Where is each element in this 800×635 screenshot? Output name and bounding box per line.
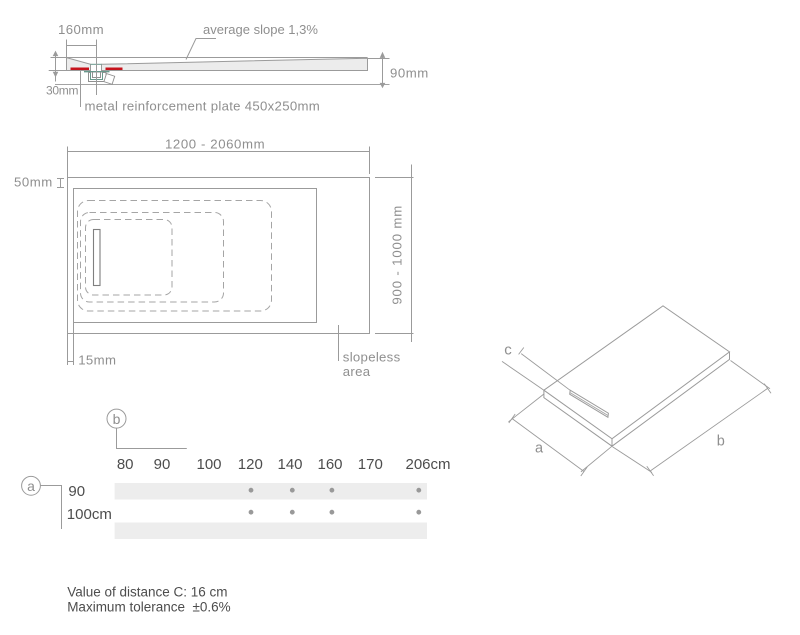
svg-text:area: area <box>343 364 371 379</box>
svg-text:160mm: 160mm <box>58 22 104 37</box>
svg-text:b: b <box>113 411 121 427</box>
svg-text:50mm: 50mm <box>14 175 53 190</box>
svg-text:160: 160 <box>317 456 342 473</box>
svg-text:slopeless: slopeless <box>343 350 401 365</box>
svg-text:90: 90 <box>154 456 171 473</box>
svg-text:c: c <box>504 342 512 359</box>
svg-text:Maximum tolerance ±0.6%: Maximum tolerance ±0.6% <box>67 600 230 615</box>
svg-text:170: 170 <box>358 456 383 473</box>
svg-text:a: a <box>535 440 544 456</box>
svg-text:15mm: 15mm <box>78 353 116 368</box>
svg-text:30mm: 30mm <box>46 84 78 98</box>
svg-text:100: 100 <box>196 456 221 473</box>
svg-text:a: a <box>27 478 35 494</box>
svg-text:metal reinforcement plate 450x: metal reinforcement plate 450x250mm <box>85 99 321 114</box>
svg-text:90: 90 <box>68 483 85 500</box>
svg-text:100cm: 100cm <box>67 506 112 523</box>
svg-text:1200 - 2060mm: 1200 - 2060mm <box>165 137 265 152</box>
svg-text:206cm: 206cm <box>405 456 450 473</box>
svg-text:b: b <box>717 434 725 450</box>
svg-text:80: 80 <box>117 456 134 473</box>
svg-text:average slope 1,3%: average slope 1,3% <box>203 22 318 37</box>
svg-text:120: 120 <box>238 456 263 473</box>
svg-text:Value of distance C: 16 cm: Value of distance C: 16 cm <box>67 585 227 600</box>
svg-text:900 - 1000 mm: 900 - 1000 mm <box>390 205 405 305</box>
svg-text:90mm: 90mm <box>390 66 429 81</box>
svg-text:140: 140 <box>277 456 302 473</box>
